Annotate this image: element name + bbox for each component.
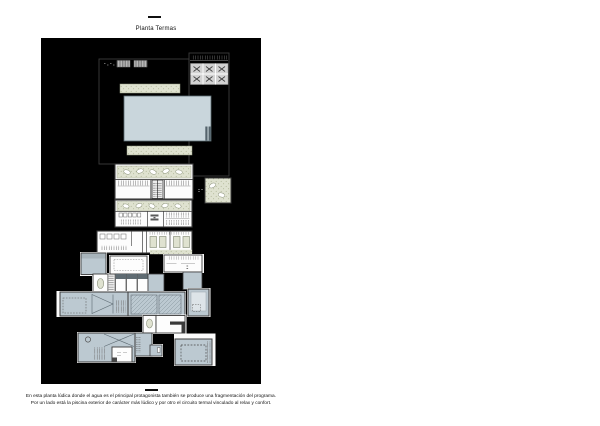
arm-ticks: [116, 300, 126, 313]
bath-room-1: [93, 274, 108, 293]
green-lounge-room: [198, 178, 231, 203]
grill-blocks: [117, 61, 147, 68]
treatment-block: [97, 231, 192, 254]
thermal-lower-right-room: [175, 339, 212, 365]
portfolio-page: Planta Termas: [0, 0, 600, 426]
plunge-cells: [116, 274, 149, 293]
link-dashes: [198, 190, 203, 192]
caption-dash-rule: [145, 389, 158, 391]
caption-line-1: En esta planta lúdica donde el agua es e…: [1, 393, 301, 400]
locker-block: [115, 200, 192, 227]
treatment-wall-ticks: [149, 232, 190, 235]
wc-marks: [100, 246, 128, 251]
thermal-circuit-upper: [80, 252, 204, 294]
thermal-circuit-middle: [57, 288, 211, 324]
bath-room-2: [143, 316, 156, 334]
lockers: [119, 213, 141, 217]
page-title: Planta Termas: [106, 26, 206, 32]
thermal-lower-left-arm: [78, 333, 135, 362]
stall-ticks-1: [166, 213, 189, 218]
thermal-column-right: [183, 272, 202, 290]
changing-stalls-right: [166, 181, 190, 186]
central-stair: [152, 180, 163, 199]
stair-strip: [108, 274, 115, 293]
thermal-connector-1: [148, 274, 164, 293]
changing-stalls-left: [118, 181, 149, 186]
terrace-deck: [99, 53, 229, 176]
thermal-right-room: [188, 289, 209, 316]
hatched-room-2: [159, 295, 181, 314]
small-box-room: [150, 345, 162, 356]
title-dash-rule: [148, 16, 161, 18]
caption-block: En esta planta lúdica donde el agua es e…: [1, 393, 301, 407]
dashed-room: [110, 256, 147, 274]
caption-line-2: Por un lado está la piscina exterior de …: [1, 400, 301, 407]
stall-ticks-2: [166, 220, 189, 225]
outdoor-pool: [124, 96, 211, 141]
planting-strip-2: [127, 146, 192, 155]
planting-strip-1: [120, 84, 180, 93]
annex-tick-strip: [191, 56, 227, 60]
planting-strip-3: [150, 250, 192, 254]
lounge-stall-block: [115, 164, 193, 199]
sun-lounger-grid: [191, 64, 229, 85]
floor-plan-svg: [41, 38, 261, 384]
hatched-room-1: [131, 295, 157, 314]
deck-marks: [104, 63, 115, 66]
thermal-connector-2: [135, 333, 152, 356]
plan-panel: [41, 38, 261, 384]
step-piece: [156, 316, 185, 334]
upper-right-room: [164, 255, 202, 272]
thermal-circuit-lower: [77, 315, 216, 367]
bench-ticks: [119, 220, 142, 225]
